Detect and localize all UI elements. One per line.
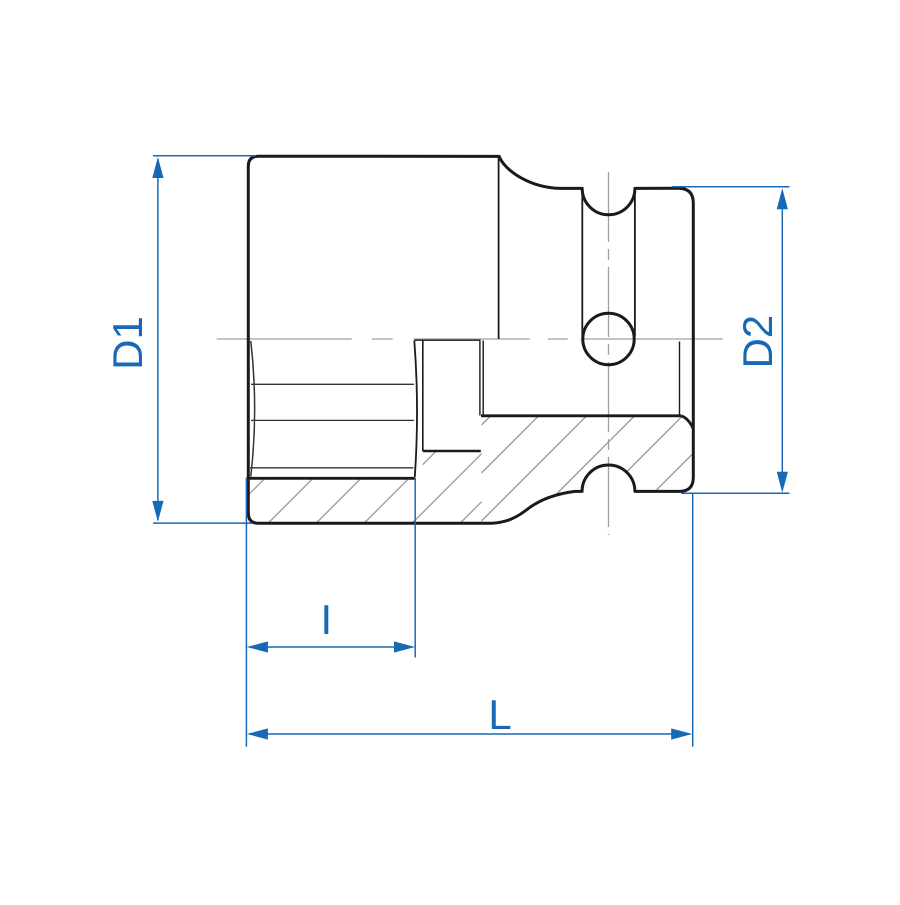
svg-text:D1: D1 [104, 316, 151, 370]
svg-text:L: L [488, 691, 511, 738]
svg-text:D2: D2 [734, 315, 781, 369]
svg-text:I: I [320, 596, 332, 643]
